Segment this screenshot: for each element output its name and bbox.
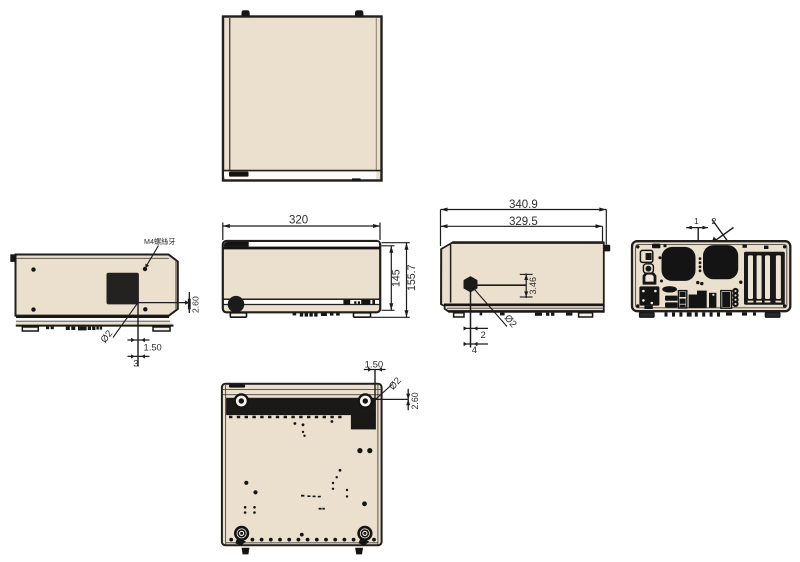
svg-text:1: 1 <box>694 216 699 226</box>
svg-text:3: 3 <box>133 358 138 369</box>
svg-text:Ø2: Ø2 <box>387 375 404 392</box>
svg-text:155.7: 155.7 <box>406 264 418 291</box>
svg-text:2: 2 <box>712 216 717 226</box>
svg-text:4: 4 <box>472 345 478 356</box>
svg-text:145: 145 <box>390 269 402 287</box>
svg-text:2: 2 <box>481 330 486 341</box>
svg-text:320: 320 <box>289 215 308 227</box>
svg-text:329.5: 329.5 <box>509 216 538 228</box>
svg-text:3.46: 3.46 <box>528 277 538 295</box>
svg-text:340.9: 340.9 <box>509 199 538 211</box>
svg-text:2.60: 2.60 <box>410 392 420 409</box>
svg-text:1.50: 1.50 <box>144 342 162 353</box>
svg-text:2.60: 2.60 <box>191 296 201 313</box>
svg-text:Ø2: Ø2 <box>502 313 519 330</box>
svg-text:Ø2: Ø2 <box>99 328 116 345</box>
svg-text:M4螺絲牙: M4螺絲牙 <box>144 237 176 246</box>
